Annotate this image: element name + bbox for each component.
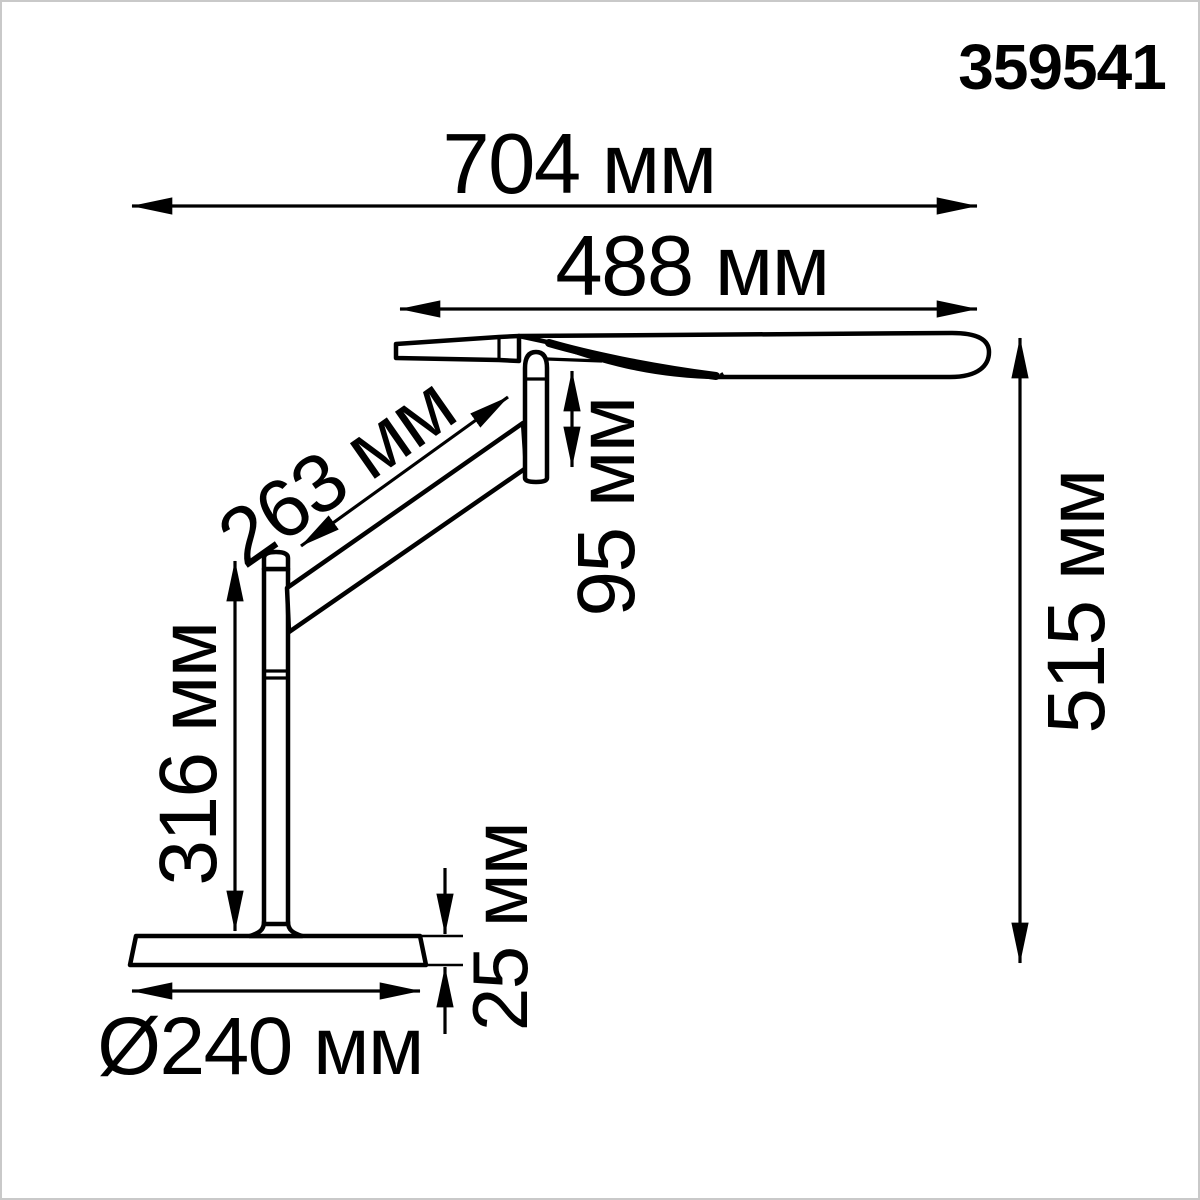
lamp-pole <box>264 569 288 924</box>
drawing-canvas: 359541 704 мм 488 мм 263 мм 95 мм 316 мм… <box>0 0 1200 1200</box>
lamp-figure <box>130 333 989 965</box>
dim-label-pole-height: 316 мм <box>143 622 234 885</box>
head-joint <box>525 352 547 482</box>
dimension-drawing: 359541 704 мм 488 мм 263 мм 95 мм 316 мм… <box>2 2 1200 1200</box>
dim-label-overall-width: 704 мм <box>442 117 715 212</box>
dim-label-head-offset: 95 мм <box>561 397 652 616</box>
dim-label-base-diameter: Ø240 мм <box>97 1001 423 1092</box>
product-code: 359541 <box>958 31 1166 103</box>
head-underside-edge <box>547 359 602 361</box>
dim-label-overall-height: 515 мм <box>1031 470 1122 733</box>
dim-label-head-length: 488 мм <box>555 219 828 314</box>
dim-label-base-thickness: 25 мм <box>456 823 544 1031</box>
lamp-base <box>130 936 426 965</box>
